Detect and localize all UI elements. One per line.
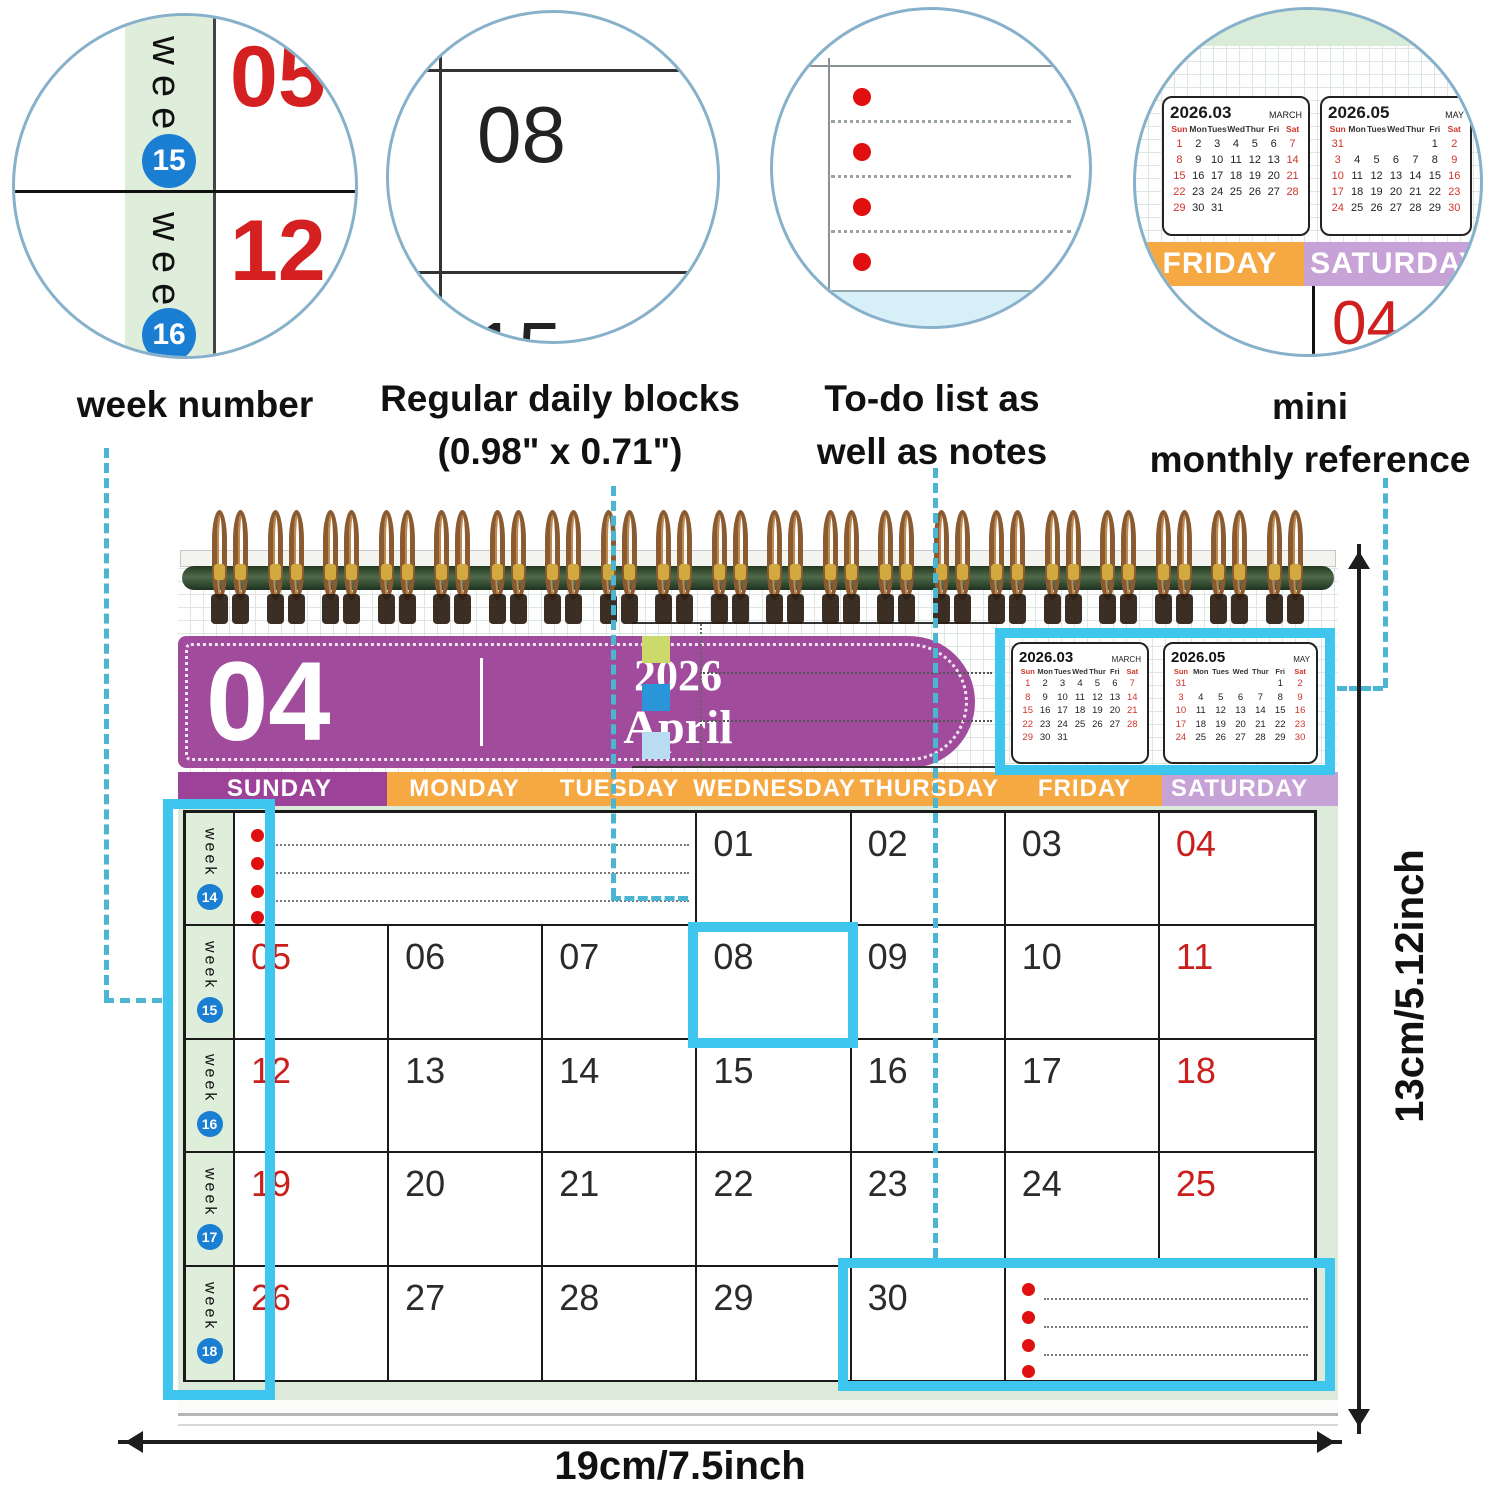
day-cell: 23 bbox=[852, 1153, 1006, 1266]
mini-calendar-march: 2026.03 MARCH SunMonTuesWedThurFriSat 12… bbox=[1011, 642, 1149, 764]
mini-calendar-title: 2026.05 bbox=[1328, 103, 1389, 123]
mini-day-number: 12 bbox=[1089, 691, 1106, 705]
coil-foot bbox=[1155, 594, 1172, 624]
mini-day-number: 5 bbox=[1245, 136, 1264, 152]
caption-line: (0.98" x 0.71") bbox=[370, 425, 750, 478]
spiral-coil bbox=[434, 508, 472, 632]
day-cell: 06 bbox=[389, 926, 543, 1039]
day-number: 07 bbox=[559, 936, 599, 978]
coil-gold-band bbox=[436, 564, 447, 580]
mini-day-header: Tues bbox=[1054, 666, 1071, 677]
callout-box-week-column bbox=[163, 799, 275, 1400]
coil-foot bbox=[1120, 594, 1137, 624]
mini-day-number bbox=[1211, 677, 1231, 691]
connector-week-number bbox=[104, 448, 109, 1000]
coil-gold-band bbox=[1179, 564, 1190, 580]
coil-foot bbox=[655, 594, 672, 624]
mini-calendar-month: MAY bbox=[1293, 655, 1310, 664]
coil-gold-band bbox=[1123, 564, 1134, 580]
mini-day-number bbox=[1106, 731, 1123, 745]
coil-wire bbox=[844, 510, 859, 600]
todo-writing-line bbox=[273, 844, 689, 846]
mini-day-number: 21 bbox=[1406, 184, 1425, 200]
mini-day-header: Mon bbox=[1191, 666, 1211, 677]
mini-day-number: 23 bbox=[1036, 718, 1053, 732]
mini-day-number: 15 bbox=[1270, 704, 1290, 718]
day-header-wednesday: WEDNESDAY bbox=[697, 772, 852, 806]
mini-calendar-month: MARCH bbox=[1269, 110, 1302, 120]
coil-foot bbox=[877, 594, 894, 624]
cell-border-line bbox=[213, 16, 216, 356]
cell-border-line bbox=[1312, 286, 1315, 357]
mini-day-number: 20 bbox=[1106, 704, 1123, 718]
caption-mini-reference: mini monthly reference bbox=[1120, 380, 1500, 486]
day-number: 04 bbox=[1332, 288, 1401, 357]
color-swatch-blue bbox=[642, 684, 670, 711]
coil-foot bbox=[621, 594, 638, 624]
coil-gold-band bbox=[901, 564, 912, 580]
mini-calendar-header: 2026.03 MARCH bbox=[1170, 103, 1302, 123]
mini-day-header-row: SunMonTuesWedThurFriSat bbox=[1328, 123, 1464, 136]
mini-day-number: 24 bbox=[1208, 184, 1227, 200]
height-dimension-label: 13cm/5.12inch bbox=[1388, 706, 1436, 1266]
day-number: 15 bbox=[473, 305, 562, 344]
mini-day-number: 19 bbox=[1245, 168, 1264, 184]
todo-writing-line bbox=[273, 872, 689, 874]
mini-day-number: 27 bbox=[1106, 718, 1123, 732]
coil-wire bbox=[455, 510, 470, 600]
coil-foot bbox=[843, 594, 860, 624]
mini-day-number: 6 bbox=[1106, 677, 1123, 691]
coil-wire bbox=[767, 510, 782, 600]
mini-calendar-may: 2026.05 MAY SunMonTuesWedThurFriSat 3112… bbox=[1163, 642, 1318, 764]
mini-day-number: 23 bbox=[1189, 184, 1208, 200]
mini-day-header: Wed bbox=[1386, 123, 1405, 136]
mini-day-header: Fri bbox=[1425, 123, 1444, 136]
day-number: 08 bbox=[477, 89, 566, 181]
coil-foot bbox=[454, 594, 471, 624]
mini-day-header: Sat bbox=[1283, 123, 1302, 136]
todo-dot bbox=[853, 198, 871, 216]
mini-day-number: 7 bbox=[1124, 677, 1141, 691]
spiral-coil bbox=[1211, 508, 1249, 632]
coil-foot bbox=[433, 594, 450, 624]
day-header-monday: MONDAY bbox=[387, 772, 542, 806]
coil-gold-band bbox=[1068, 564, 1079, 580]
mini-day-header: Thur bbox=[1406, 123, 1425, 136]
coil-foot bbox=[954, 594, 971, 624]
saturday-header-block: SATURDAY bbox=[1304, 242, 1483, 286]
coil-wire bbox=[323, 510, 338, 600]
mini-day-number: 28 bbox=[1250, 731, 1270, 745]
day-cell: 15 bbox=[697, 1040, 851, 1153]
day-number: 20 bbox=[405, 1163, 445, 1205]
coil-foot bbox=[898, 594, 915, 624]
mini-day-number bbox=[1250, 677, 1270, 691]
mini-day-grid: 1234567891011121314151617181920212223242… bbox=[1019, 677, 1141, 745]
day-number: 21 bbox=[559, 1163, 599, 1205]
day-number: 12 bbox=[230, 202, 326, 301]
day-cell: 22 bbox=[697, 1153, 851, 1266]
connector-todo bbox=[933, 468, 938, 1258]
coil-foot bbox=[232, 594, 249, 624]
mini-day-number: 31 bbox=[1328, 136, 1347, 152]
mini-day-header: Mon bbox=[1189, 123, 1208, 136]
color-swatch-green bbox=[642, 636, 670, 663]
mini-day-number: 3 bbox=[1328, 152, 1347, 168]
coil-wire bbox=[899, 510, 914, 600]
coil-gold-band bbox=[346, 564, 357, 580]
spiral-coil bbox=[934, 508, 972, 632]
mini-day-number: 22 bbox=[1425, 184, 1444, 200]
coil-gold-band bbox=[624, 564, 635, 580]
mini-calendar-header: 2026.05 MAY bbox=[1328, 103, 1464, 123]
coil-wire bbox=[344, 510, 359, 600]
mini-day-number: 22 bbox=[1019, 718, 1036, 732]
header-notes-area bbox=[632, 622, 1000, 768]
day-cell: 27 bbox=[389, 1267, 543, 1380]
day-cell: 03 bbox=[1006, 813, 1160, 926]
mini-day-number bbox=[1191, 677, 1211, 691]
mini-day-number: 11 bbox=[1347, 168, 1366, 184]
spiral-coil bbox=[1267, 508, 1305, 632]
mini-day-number: 13 bbox=[1386, 168, 1405, 184]
coil-wire bbox=[434, 510, 449, 600]
mini-day-grid: 1234567891011121314151617181920212223242… bbox=[1170, 136, 1302, 216]
mini-day-number: 6 bbox=[1386, 152, 1405, 168]
mini-day-number: 8 bbox=[1270, 691, 1290, 705]
spiral-coil bbox=[1156, 508, 1194, 632]
spiral-coil bbox=[323, 508, 361, 632]
callout-box-bottom-todo bbox=[838, 1258, 1335, 1391]
mini-day-number: 23 bbox=[1290, 718, 1310, 732]
mini-day-header: Sun bbox=[1171, 666, 1191, 677]
coil-gold-band bbox=[402, 564, 413, 580]
cell-border-line bbox=[15, 190, 355, 193]
mini-calendar-header: 2026.05 MAY bbox=[1171, 649, 1310, 666]
day-cell: 10 bbox=[1006, 926, 1160, 1039]
day-number: 03 bbox=[1022, 823, 1062, 865]
day-header-friday: FRIDAY bbox=[1007, 772, 1162, 806]
callout-circle-todo bbox=[770, 7, 1092, 329]
mini-day-number: 11 bbox=[1191, 704, 1211, 718]
spiral-coil bbox=[767, 508, 805, 632]
cell-bottom-strip bbox=[773, 290, 1089, 329]
mini-day-header: Wed bbox=[1227, 123, 1246, 136]
cell-border-line bbox=[795, 65, 1075, 67]
mini-day-number: 19 bbox=[1089, 704, 1106, 718]
coil-gold-band bbox=[1047, 564, 1058, 580]
mini-day-number: 29 bbox=[1170, 200, 1189, 216]
coil-wire bbox=[1267, 510, 1282, 600]
coil-foot bbox=[1176, 594, 1193, 624]
width-dimension-label: 19cm/7.5inch bbox=[400, 1444, 960, 1489]
spiral-coil bbox=[1045, 508, 1083, 632]
day-cell: 11 bbox=[1160, 926, 1314, 1039]
coil-gold-band bbox=[991, 564, 1002, 580]
day-number: 01 bbox=[713, 823, 753, 865]
day-cell: 21 bbox=[543, 1153, 697, 1266]
day-number: 13 bbox=[405, 1050, 445, 1092]
cell-border-line bbox=[425, 69, 720, 72]
day-cell: 13 bbox=[389, 1040, 543, 1153]
coil-foot bbox=[288, 594, 305, 624]
coil-gold-band bbox=[235, 564, 246, 580]
spiral-coil bbox=[712, 508, 750, 632]
product-infographic: week 15 05 week 16 12 week number 08 15 … bbox=[0, 0, 1500, 1491]
coil-wire bbox=[1211, 510, 1226, 600]
coil-wire bbox=[712, 510, 727, 600]
spiral-coil bbox=[490, 508, 528, 632]
day-number: 04 bbox=[1176, 823, 1216, 865]
coil-foot bbox=[988, 594, 1005, 624]
mini-day-number bbox=[1071, 731, 1088, 745]
day-number: 06 bbox=[405, 936, 445, 978]
caption-daily-blocks: Regular daily blocks (0.98" x 0.71") bbox=[370, 372, 750, 478]
spiral-coil bbox=[878, 508, 916, 632]
mini-day-number: 4 bbox=[1347, 152, 1366, 168]
coil-foot bbox=[1009, 594, 1026, 624]
coil-gold-band bbox=[1012, 564, 1023, 580]
mini-day-number: 24 bbox=[1054, 718, 1071, 732]
coil-foot bbox=[732, 594, 749, 624]
coil-gold-band bbox=[790, 564, 801, 580]
todo-area-top bbox=[235, 813, 697, 926]
day-number: 10 bbox=[1022, 936, 1062, 978]
coil-gold-band bbox=[568, 564, 579, 580]
mini-calendar-header: 2026.03 MARCH bbox=[1019, 649, 1141, 666]
mini-day-number: 21 bbox=[1283, 168, 1302, 184]
day-number: 17 bbox=[1022, 1050, 1062, 1092]
day-cell: 02 bbox=[852, 813, 1006, 926]
mini-day-number: 14 bbox=[1406, 168, 1425, 184]
cell-border-line bbox=[405, 271, 705, 274]
day-number: 22 bbox=[713, 1163, 753, 1205]
coil-wire bbox=[1177, 510, 1192, 600]
mini-day-number: 22 bbox=[1270, 718, 1290, 732]
mini-day-header: Tues bbox=[1367, 123, 1386, 136]
mini-day-number: 10 bbox=[1208, 152, 1227, 168]
mini-day-number: 20 bbox=[1386, 184, 1405, 200]
mini-day-number: 1 bbox=[1425, 136, 1444, 152]
spiral-coil bbox=[379, 508, 417, 632]
mini-day-number bbox=[1406, 136, 1425, 152]
mini-day-header: Thur bbox=[1250, 666, 1270, 677]
connector-daily-block bbox=[611, 486, 616, 898]
coil-gold-band bbox=[957, 564, 968, 580]
mini-day-number: 30 bbox=[1189, 200, 1208, 216]
mini-calendar-month: MARCH bbox=[1112, 655, 1141, 664]
mini-day-number: 9 bbox=[1189, 152, 1208, 168]
mini-day-number: 2 bbox=[1445, 136, 1464, 152]
coil-gold-band bbox=[325, 564, 336, 580]
mini-day-header-row: SunMonTuesWedThurFriSat bbox=[1019, 666, 1141, 677]
coil-wire bbox=[656, 510, 671, 600]
mini-day-number: 13 bbox=[1231, 704, 1251, 718]
day-number: 16 bbox=[868, 1050, 908, 1092]
coil-wire bbox=[400, 510, 415, 600]
mini-day-number: 23 bbox=[1445, 184, 1464, 200]
mini-day-header: Wed bbox=[1231, 666, 1251, 677]
spiral-binding bbox=[212, 508, 1304, 632]
mini-day-number: 20 bbox=[1231, 718, 1251, 732]
mini-calendar-title: 2026.03 bbox=[1170, 103, 1231, 123]
caption-line: To-do list as bbox=[762, 372, 1102, 425]
mini-day-number: 8 bbox=[1425, 152, 1444, 168]
mini-day-number: 18 bbox=[1227, 168, 1246, 184]
mini-day-number: 16 bbox=[1290, 704, 1310, 718]
mini-day-number bbox=[1089, 731, 1106, 745]
mini-day-grid: 3112345678910111213141516171819202122232… bbox=[1328, 136, 1464, 216]
mini-day-number: 10 bbox=[1054, 691, 1071, 705]
height-dimension-arrow bbox=[1357, 544, 1361, 1434]
coil-foot bbox=[1210, 594, 1227, 624]
mini-day-number: 25 bbox=[1227, 184, 1246, 200]
coil-gold-band bbox=[547, 564, 558, 580]
mini-day-number: 1 bbox=[1019, 677, 1036, 691]
coil-wire bbox=[233, 510, 248, 600]
mini-day-number: 5 bbox=[1367, 152, 1386, 168]
coil-gold-band bbox=[270, 564, 281, 580]
coil-foot bbox=[1266, 594, 1283, 624]
mini-day-number: 9 bbox=[1445, 152, 1464, 168]
mini-calendar-may: 2026.05 MAY SunMonTuesWedThurFriSat 3112… bbox=[1320, 96, 1472, 236]
mini-day-number: 12 bbox=[1367, 168, 1386, 184]
week-number-badge: 16 bbox=[142, 308, 196, 359]
mini-day-number: 19 bbox=[1367, 184, 1386, 200]
spiral-coil bbox=[1100, 508, 1138, 632]
day-cell: 16 bbox=[852, 1040, 1006, 1153]
mini-day-number: 11 bbox=[1071, 691, 1088, 705]
callout-circle-week-number: week 15 05 week 16 12 bbox=[12, 13, 358, 359]
caption-line: Regular daily blocks bbox=[370, 372, 750, 425]
mini-day-number: 9 bbox=[1036, 691, 1053, 705]
spiral-coil bbox=[989, 508, 1027, 632]
mini-calendar-march: 2026.03 MARCH SunMonTuesWedThurFriSat 12… bbox=[1162, 96, 1310, 236]
coil-foot bbox=[787, 594, 804, 624]
mini-day-number: 25 bbox=[1071, 718, 1088, 732]
mini-day-header-row: SunMonTuesWedThurFriSat bbox=[1171, 666, 1310, 677]
mini-day-number: 2 bbox=[1189, 136, 1208, 152]
coil-wire bbox=[733, 510, 748, 600]
mini-day-number: 26 bbox=[1245, 184, 1264, 200]
todo-dot bbox=[853, 88, 871, 106]
mini-day-number: 20 bbox=[1264, 168, 1283, 184]
mini-day-number: 10 bbox=[1328, 168, 1347, 184]
mini-day-header: Tues bbox=[1208, 123, 1227, 136]
coil-foot bbox=[1065, 594, 1082, 624]
mini-day-number: 3 bbox=[1054, 677, 1071, 691]
mini-calendar-title: 2026.03 bbox=[1019, 649, 1073, 666]
coil-foot bbox=[489, 594, 506, 624]
coil-foot bbox=[1099, 594, 1116, 624]
mini-day-number: 4 bbox=[1227, 136, 1246, 152]
coil-foot bbox=[1044, 594, 1061, 624]
coil-foot bbox=[822, 594, 839, 624]
mini-day-number: 16 bbox=[1189, 168, 1208, 184]
mini-day-number bbox=[1231, 677, 1251, 691]
coil-gold-band bbox=[1290, 564, 1301, 580]
mini-day-number bbox=[1245, 200, 1264, 216]
coil-wire bbox=[622, 510, 637, 600]
mini-day-number: 17 bbox=[1208, 168, 1227, 184]
spiral-coil bbox=[545, 508, 583, 632]
mini-day-number: 7 bbox=[1250, 691, 1270, 705]
callout-box-day-cell-08 bbox=[688, 922, 858, 1048]
day-number: 18 bbox=[1176, 1050, 1216, 1092]
mini-day-number bbox=[1347, 136, 1366, 152]
spiral-coil bbox=[823, 508, 861, 632]
coil-gold-band bbox=[457, 564, 468, 580]
coil-gold-band bbox=[714, 564, 725, 580]
spiral-coil bbox=[601, 508, 639, 632]
mini-day-header: Sun bbox=[1170, 123, 1189, 136]
coil-gold-band bbox=[880, 564, 891, 580]
mini-day-number: 6 bbox=[1264, 136, 1283, 152]
mini-day-number: 31 bbox=[1054, 731, 1071, 745]
coil-gold-band bbox=[381, 564, 392, 580]
mini-day-number: 25 bbox=[1191, 731, 1211, 745]
cell-border-line bbox=[828, 58, 830, 293]
coil-gold-band bbox=[1213, 564, 1224, 580]
mini-day-number: 7 bbox=[1283, 136, 1302, 152]
mini-day-number: 12 bbox=[1211, 704, 1231, 718]
mini-day-header: Sun bbox=[1328, 123, 1347, 136]
coil-gold-band bbox=[825, 564, 836, 580]
mini-day-number: 28 bbox=[1124, 718, 1141, 732]
day-cell: 01 bbox=[697, 813, 851, 926]
notes-divider-dotted bbox=[700, 624, 702, 766]
mini-day-number: 8 bbox=[1019, 691, 1036, 705]
coil-wire bbox=[511, 510, 526, 600]
coil-wire bbox=[955, 510, 970, 600]
coil-wire bbox=[823, 510, 838, 600]
coil-gold-band bbox=[658, 564, 669, 580]
notes-writing-line bbox=[700, 672, 992, 674]
mini-day-number: 24 bbox=[1328, 200, 1347, 216]
day-number: 05 bbox=[230, 28, 326, 127]
coil-wire bbox=[1010, 510, 1025, 600]
coil-wire bbox=[1156, 510, 1171, 600]
mini-day-number: 17 bbox=[1328, 184, 1347, 200]
mini-day-header: Sat bbox=[1445, 123, 1464, 136]
mini-day-number: 21 bbox=[1124, 704, 1141, 718]
mini-day-number: 29 bbox=[1425, 200, 1444, 216]
mini-day-number: 2 bbox=[1290, 677, 1310, 691]
mini-day-number: 4 bbox=[1191, 691, 1211, 705]
cell-area bbox=[1136, 286, 1483, 357]
mini-day-number bbox=[1124, 731, 1141, 745]
page-green-strip bbox=[1136, 10, 1480, 46]
day-header-tuesday: TUESDAY bbox=[542, 772, 697, 806]
coil-wire bbox=[1121, 510, 1136, 600]
day-number: 15 bbox=[713, 1050, 753, 1092]
coil-foot bbox=[711, 594, 728, 624]
cell-border-line bbox=[439, 41, 442, 329]
coil-gold-band bbox=[1158, 564, 1169, 580]
coil-gold-band bbox=[1102, 564, 1113, 580]
mini-day-number: 28 bbox=[1283, 184, 1302, 200]
mini-day-number: 15 bbox=[1170, 168, 1189, 184]
mini-day-number: 3 bbox=[1171, 691, 1191, 705]
coil-wire bbox=[1288, 510, 1303, 600]
mini-day-number: 17 bbox=[1171, 718, 1191, 732]
mini-day-number: 18 bbox=[1191, 718, 1211, 732]
mini-day-number: 30 bbox=[1036, 731, 1053, 745]
mini-day-number: 29 bbox=[1019, 731, 1036, 745]
coil-foot bbox=[399, 594, 416, 624]
coil-wire bbox=[545, 510, 560, 600]
